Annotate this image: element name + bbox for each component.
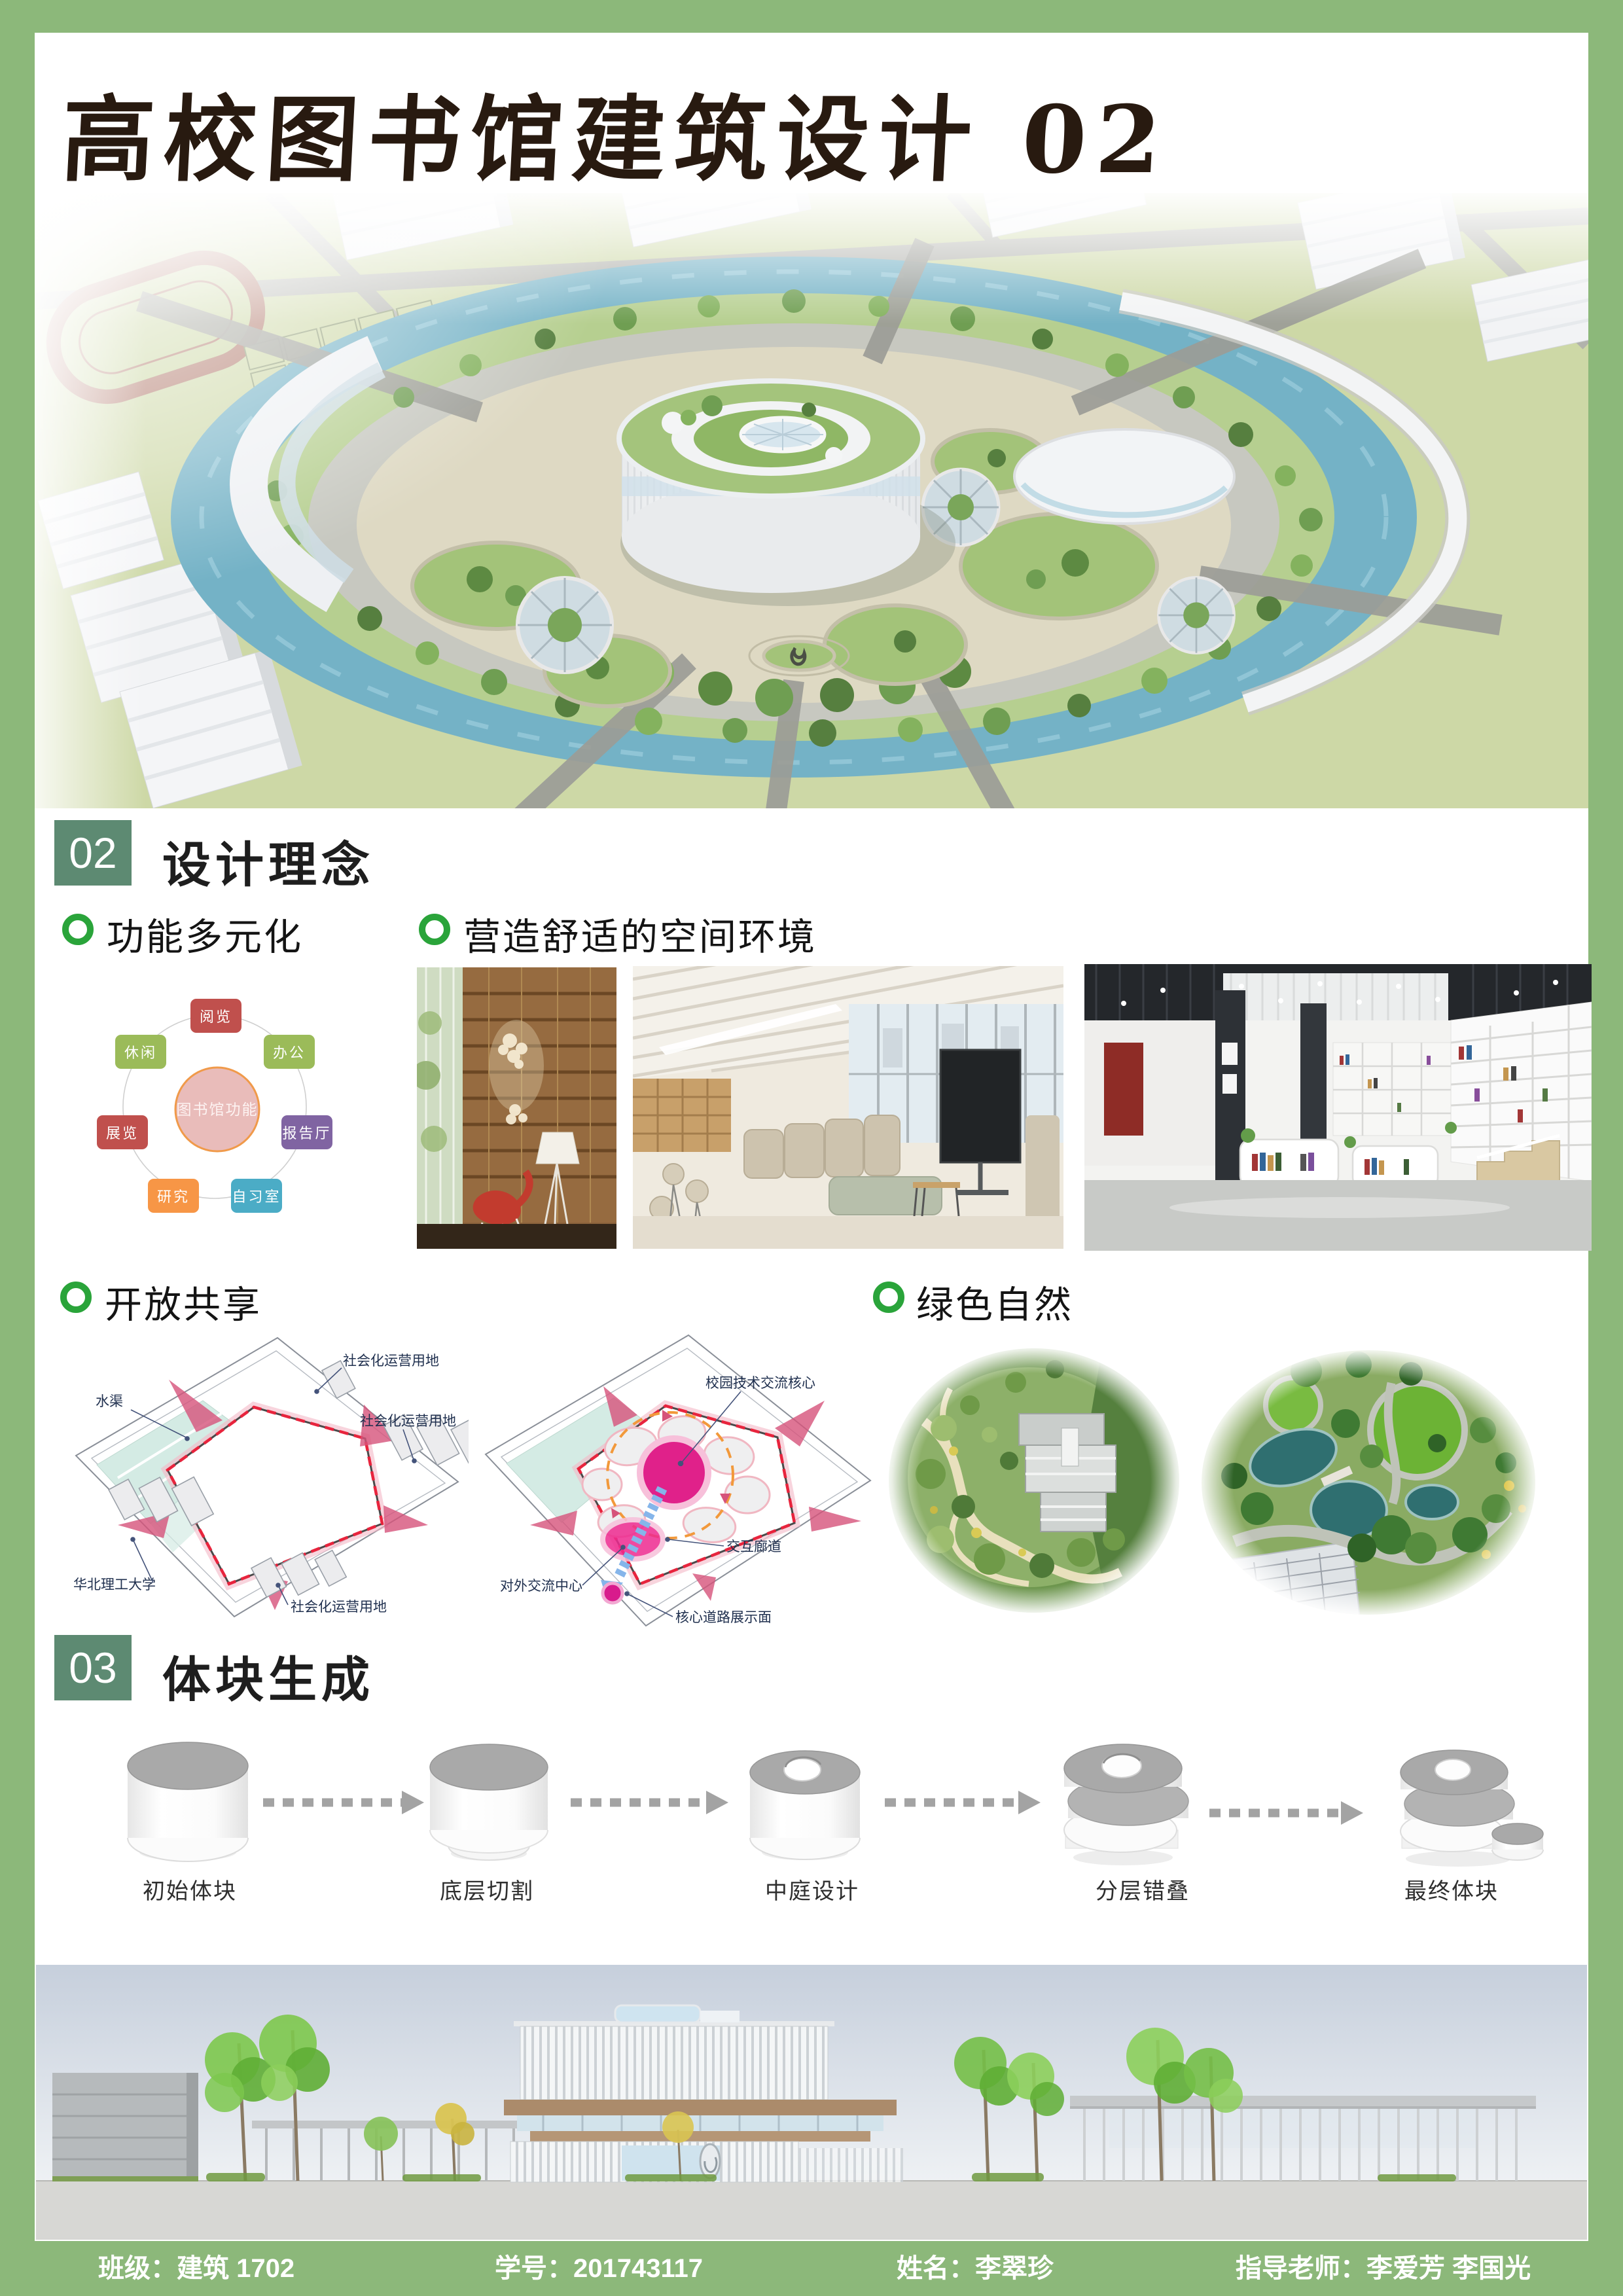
function-diagram: 图书馆功能 阅览 办公 报告厅 自习室 研究 展览 休闲 xyxy=(79,978,370,1253)
node-reading: 阅览 xyxy=(190,999,241,1033)
building-elevation xyxy=(36,1965,1587,2240)
function-diagram-center: 图书馆功能 xyxy=(177,1101,259,1118)
photo-white-library xyxy=(1084,964,1592,1251)
photo-green-roof xyxy=(885,1343,1183,1618)
bullet-ring-icon xyxy=(419,914,450,945)
label-social-bottom: 社会化运营用地 xyxy=(291,1600,387,1615)
footer-advisor: 指导老师：李爱芳 李国光 xyxy=(1236,2241,1531,2296)
step-label-cut: 底层切割 xyxy=(415,1873,559,1905)
bullet-ring-icon xyxy=(873,1282,904,1313)
bullet-green-nature: 绿色自然 xyxy=(916,1275,1073,1329)
mass-base-cut xyxy=(430,1744,548,1861)
node-exhibit: 展览 xyxy=(97,1115,148,1149)
site-diagram-open: 水渠 社会化运营用地 社会化运营用地 华北理工大学 社会化运营用地 xyxy=(58,1327,469,1619)
bullet-ring-icon xyxy=(60,1282,92,1313)
label-social-right: 社会化运营用地 xyxy=(360,1414,456,1429)
poster-page: 高校图书馆建筑设计 02 xyxy=(0,0,1623,2296)
step-label-atrium: 中庭设计 xyxy=(740,1873,884,1905)
step-label-initial: 初始体块 xyxy=(118,1873,262,1905)
bullet-multi-function: 功能多元化 xyxy=(107,907,303,961)
mass-generation-diagram xyxy=(65,1734,1564,1875)
section-02-badge: 02 xyxy=(54,820,132,886)
footer-student-id: 学号：201743117 xyxy=(495,2241,703,2296)
mass-final xyxy=(1400,1750,1543,1867)
site-diagram-core: 校园技术交流核心 交互廊道 对外交流中心 核心道路展示面 xyxy=(466,1323,885,1630)
node-hall: 报告厅 xyxy=(281,1115,332,1149)
section-03-number: 03 xyxy=(69,1643,116,1693)
photo-warm-library xyxy=(417,967,616,1249)
gray-building xyxy=(52,2073,198,2181)
aerial-rendering xyxy=(35,193,1588,808)
photo-roof-garden-ponds xyxy=(1195,1345,1542,1620)
section-03-badge: 03 xyxy=(54,1635,132,1700)
label-road-face: 核心道路展示面 xyxy=(675,1610,772,1625)
mass-layered xyxy=(1064,1744,1188,1865)
label-exchange-center: 对外交流中心 xyxy=(500,1579,582,1594)
label-university: 华北理工大学 xyxy=(73,1577,156,1592)
section-02-number: 02 xyxy=(69,828,116,878)
label-tech-core: 校园技术交流核心 xyxy=(705,1376,815,1391)
step-label-final: 最终体块 xyxy=(1380,1873,1524,1905)
label-water: 水渠 xyxy=(96,1394,123,1409)
mass-atrium xyxy=(750,1751,860,1860)
step-label-layered: 分层错叠 xyxy=(1071,1873,1215,1905)
section-02-title: 设计理念 xyxy=(162,826,374,896)
oval-canopy xyxy=(1014,429,1234,524)
node-office: 办公 xyxy=(264,1035,315,1069)
footer-name: 姓名：李翠珍 xyxy=(897,2241,1054,2296)
bullet-comfort-space: 营造舒适的空间环境 xyxy=(463,907,817,961)
mass-initial xyxy=(128,1742,248,1861)
core-circle xyxy=(640,1439,708,1507)
node-study: 自习室 xyxy=(231,1179,282,1213)
bullet-ring-icon xyxy=(62,914,94,945)
node-research: 研究 xyxy=(148,1179,199,1213)
label-corridor: 交互廊道 xyxy=(726,1539,781,1554)
fountain xyxy=(749,636,849,675)
page-title: 高校图书馆建筑设计 02 xyxy=(59,64,1179,199)
photo-reading-lounge xyxy=(633,966,1063,1249)
node-leisure: 休闲 xyxy=(115,1035,166,1069)
section-03-title: 体块生成 xyxy=(162,1641,374,1711)
central-library xyxy=(619,381,955,606)
label-social-top: 社会化运营用地 xyxy=(343,1354,439,1369)
footer-bar: 班级：建筑 1702 学号：201743117 姓名：李翠珍 指导老师：李爱芳 … xyxy=(0,2241,1623,2296)
footer-class: 班级：建筑 1702 xyxy=(98,2241,294,2296)
bullet-open-share: 开放共享 xyxy=(105,1275,262,1329)
